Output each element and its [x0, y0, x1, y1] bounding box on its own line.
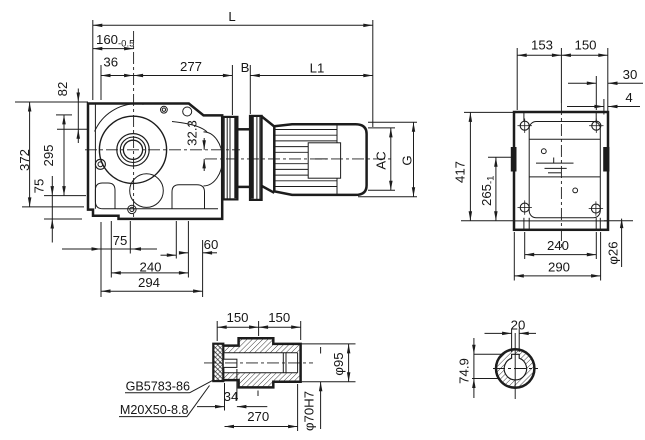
svg-text:153: 153: [531, 38, 553, 53]
svg-text:AC: AC: [374, 151, 389, 170]
svg-text:60: 60: [204, 237, 219, 252]
svg-text:B: B: [241, 60, 250, 75]
svg-text:φ70H7: φ70H7: [302, 391, 317, 431]
svg-text:G: G: [400, 155, 415, 165]
svg-text:36: 36: [103, 55, 118, 70]
svg-text:290: 290: [548, 260, 570, 275]
svg-text:L1: L1: [310, 61, 325, 76]
svg-text:277: 277: [180, 59, 202, 74]
svg-text:150: 150: [574, 38, 596, 53]
svg-text:GB5783-86: GB5783-86: [126, 380, 190, 394]
svg-text:4: 4: [625, 90, 632, 105]
svg-text:L: L: [228, 9, 235, 24]
svg-text:φ95: φ95: [331, 352, 346, 375]
svg-text:372: 372: [17, 149, 32, 171]
svg-text:φ26: φ26: [606, 241, 621, 264]
svg-text:75: 75: [113, 233, 128, 248]
svg-text:417: 417: [453, 161, 468, 183]
svg-text:34: 34: [224, 389, 239, 404]
svg-text:150: 150: [268, 310, 290, 325]
svg-text:74.9: 74.9: [457, 358, 472, 384]
svg-text:75: 75: [32, 179, 47, 194]
svg-text:240: 240: [139, 260, 161, 275]
svg-text:20: 20: [511, 318, 526, 333]
svg-text:30: 30: [623, 67, 638, 82]
svg-text:32.3: 32.3: [185, 120, 200, 146]
svg-text:270: 270: [247, 409, 269, 424]
svg-text:240: 240: [547, 238, 569, 253]
svg-text:295: 295: [41, 144, 56, 166]
svg-text:150: 150: [226, 310, 248, 325]
svg-text:294: 294: [138, 275, 160, 290]
svg-text:82: 82: [55, 82, 70, 97]
svg-text:M20X50-8.8: M20X50-8.8: [120, 403, 189, 417]
